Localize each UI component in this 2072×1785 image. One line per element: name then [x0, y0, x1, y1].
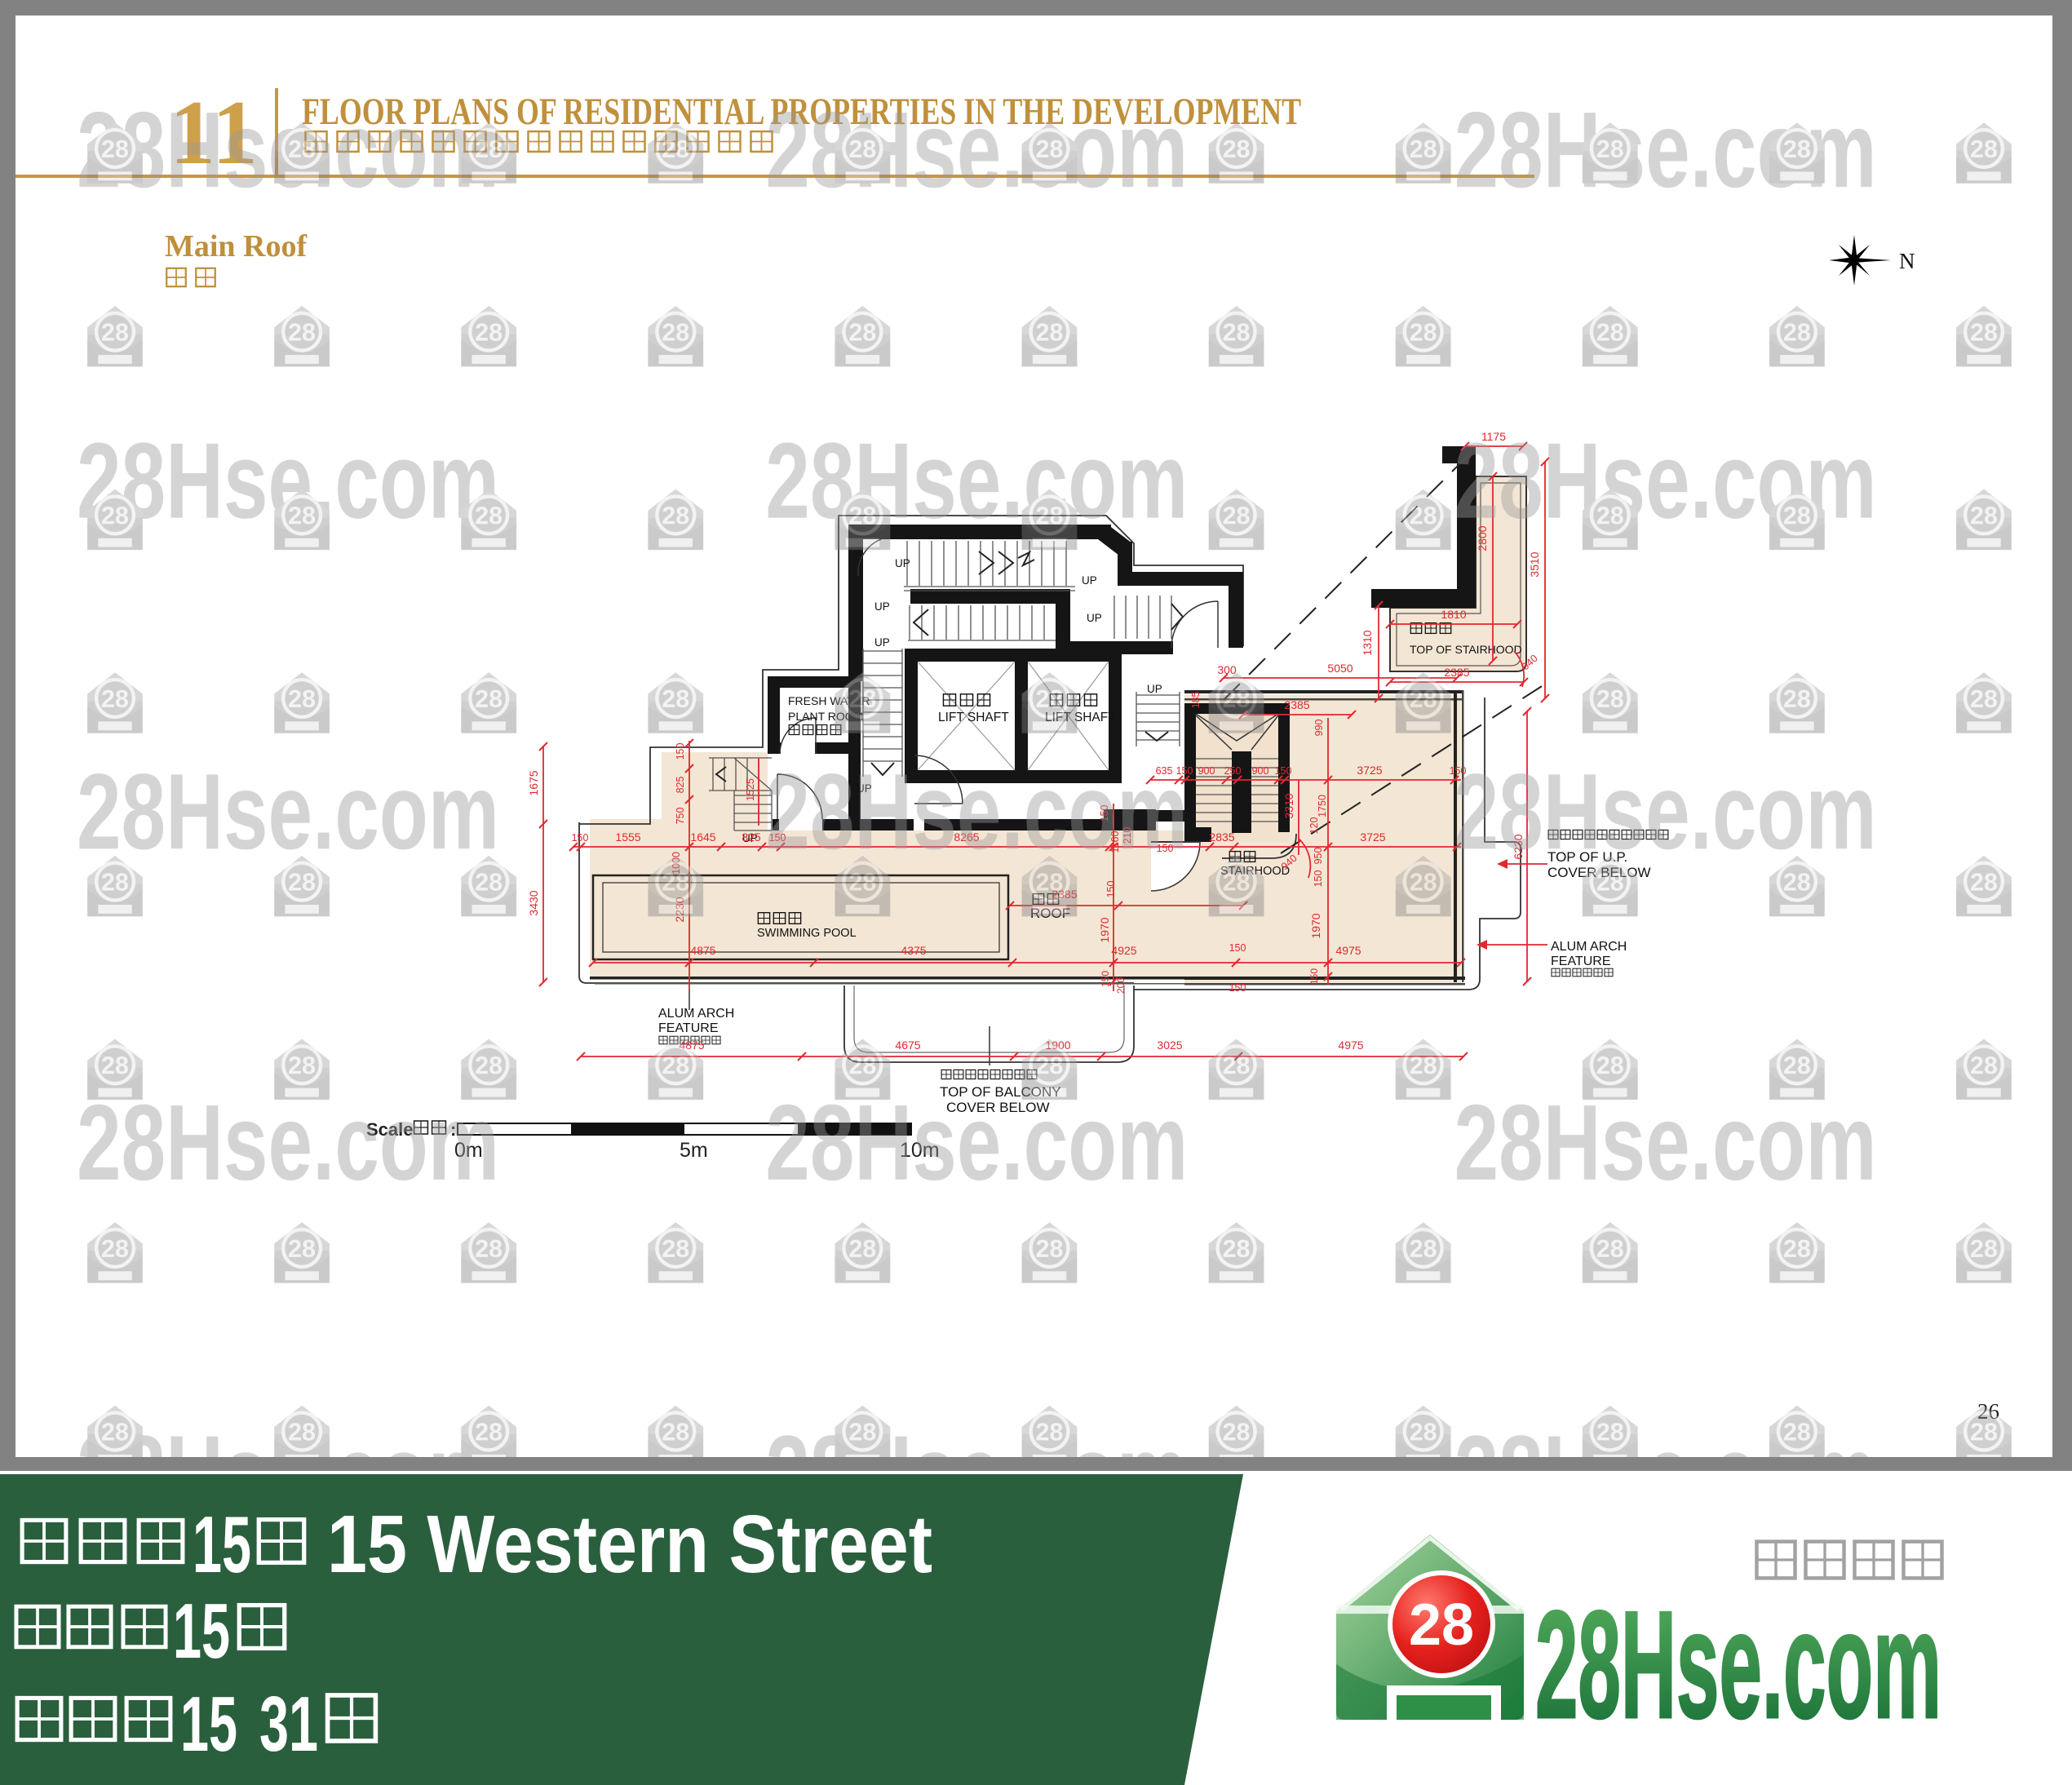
- svg-text:28Hse.com: 28Hse.com: [1535, 1579, 1941, 1750]
- svg-text:15 Western Street: 15 Western Street: [327, 1499, 932, 1590]
- svg-text:15: 15: [193, 1499, 251, 1589]
- svg-text:15: 15: [173, 1588, 230, 1675]
- svg-text:15: 15: [180, 1681, 237, 1768]
- svg-text:28: 28: [1409, 1592, 1474, 1658]
- svg-text:31: 31: [259, 1681, 318, 1768]
